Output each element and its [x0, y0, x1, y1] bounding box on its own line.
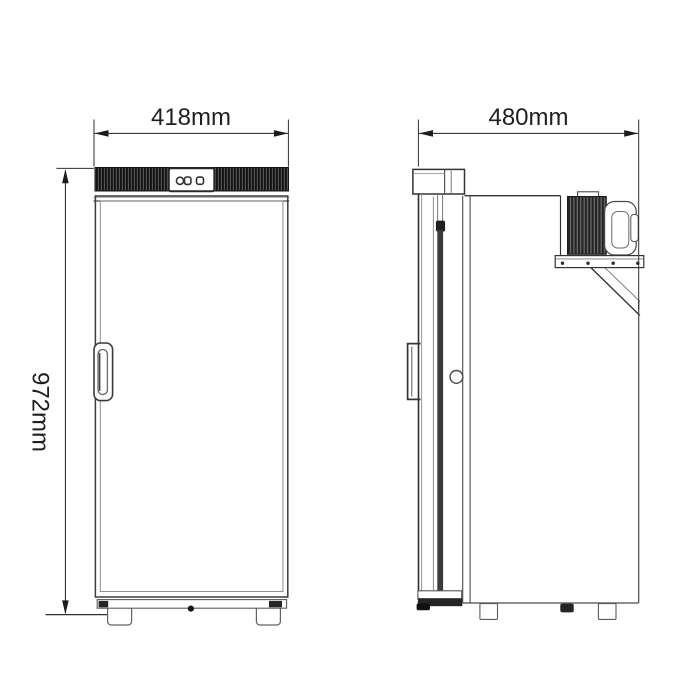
door-top-cap	[413, 169, 465, 194]
width-dimension-label: 418mm	[151, 104, 231, 131]
door-outer-edge	[95, 196, 287, 597]
front-view	[94, 168, 290, 626]
foot-front	[480, 604, 498, 620]
arrow-left-icon	[95, 130, 109, 137]
rear-corner-brace	[591, 267, 640, 315]
gasket-top-cap	[436, 221, 445, 232]
panel-led-icon	[197, 177, 204, 184]
arrow-left-icon	[419, 130, 433, 137]
arrow-down-icon	[62, 600, 69, 614]
arrow-up-icon	[62, 169, 69, 183]
control-panel	[169, 168, 215, 191]
panel-button-icon	[176, 177, 183, 184]
plate-screw-icon	[586, 262, 589, 265]
plinth-cap-right	[269, 601, 282, 607]
base-side	[480, 604, 616, 620]
height-dimension-label: 972mm	[27, 372, 54, 452]
rear-corner-brace-inner	[605, 267, 640, 301]
compressor-motor-core	[612, 212, 629, 249]
base-front	[97, 600, 286, 625]
compressor-terminal	[631, 215, 638, 242]
dimension-width: 418mm	[94, 104, 288, 167]
arrow-right-icon	[274, 130, 288, 137]
condenser-fins	[568, 197, 607, 255]
door-gasket	[437, 230, 443, 591]
drawing-canvas: 418mm 972mm	[0, 0, 700, 700]
side-view	[408, 169, 644, 619]
mounting-plate	[555, 256, 644, 268]
door-inner-edge	[100, 201, 283, 592]
depth-dimension-label: 480mm	[488, 104, 568, 131]
plate-screw-icon	[561, 262, 564, 265]
cabinet-front-outline	[94, 196, 290, 597]
bottom-bracket	[560, 604, 573, 613]
arrow-right-icon	[624, 130, 638, 137]
door-bottom-hinge	[417, 603, 430, 610]
refrigerator-dimension-drawing: 418mm 972mm	[0, 0, 700, 700]
door-bottom-rail	[418, 591, 462, 599]
door-handle	[94, 343, 113, 401]
door-side-profile	[408, 169, 465, 610]
plate-screw-icon	[612, 262, 615, 265]
plinth-cap-left	[99, 601, 109, 607]
foot-rear	[598, 604, 616, 620]
lock-screw-icon	[450, 371, 463, 384]
drain-screw-icon	[188, 606, 194, 612]
compressor-unit	[555, 192, 644, 268]
panel-switch-icon	[185, 177, 191, 184]
